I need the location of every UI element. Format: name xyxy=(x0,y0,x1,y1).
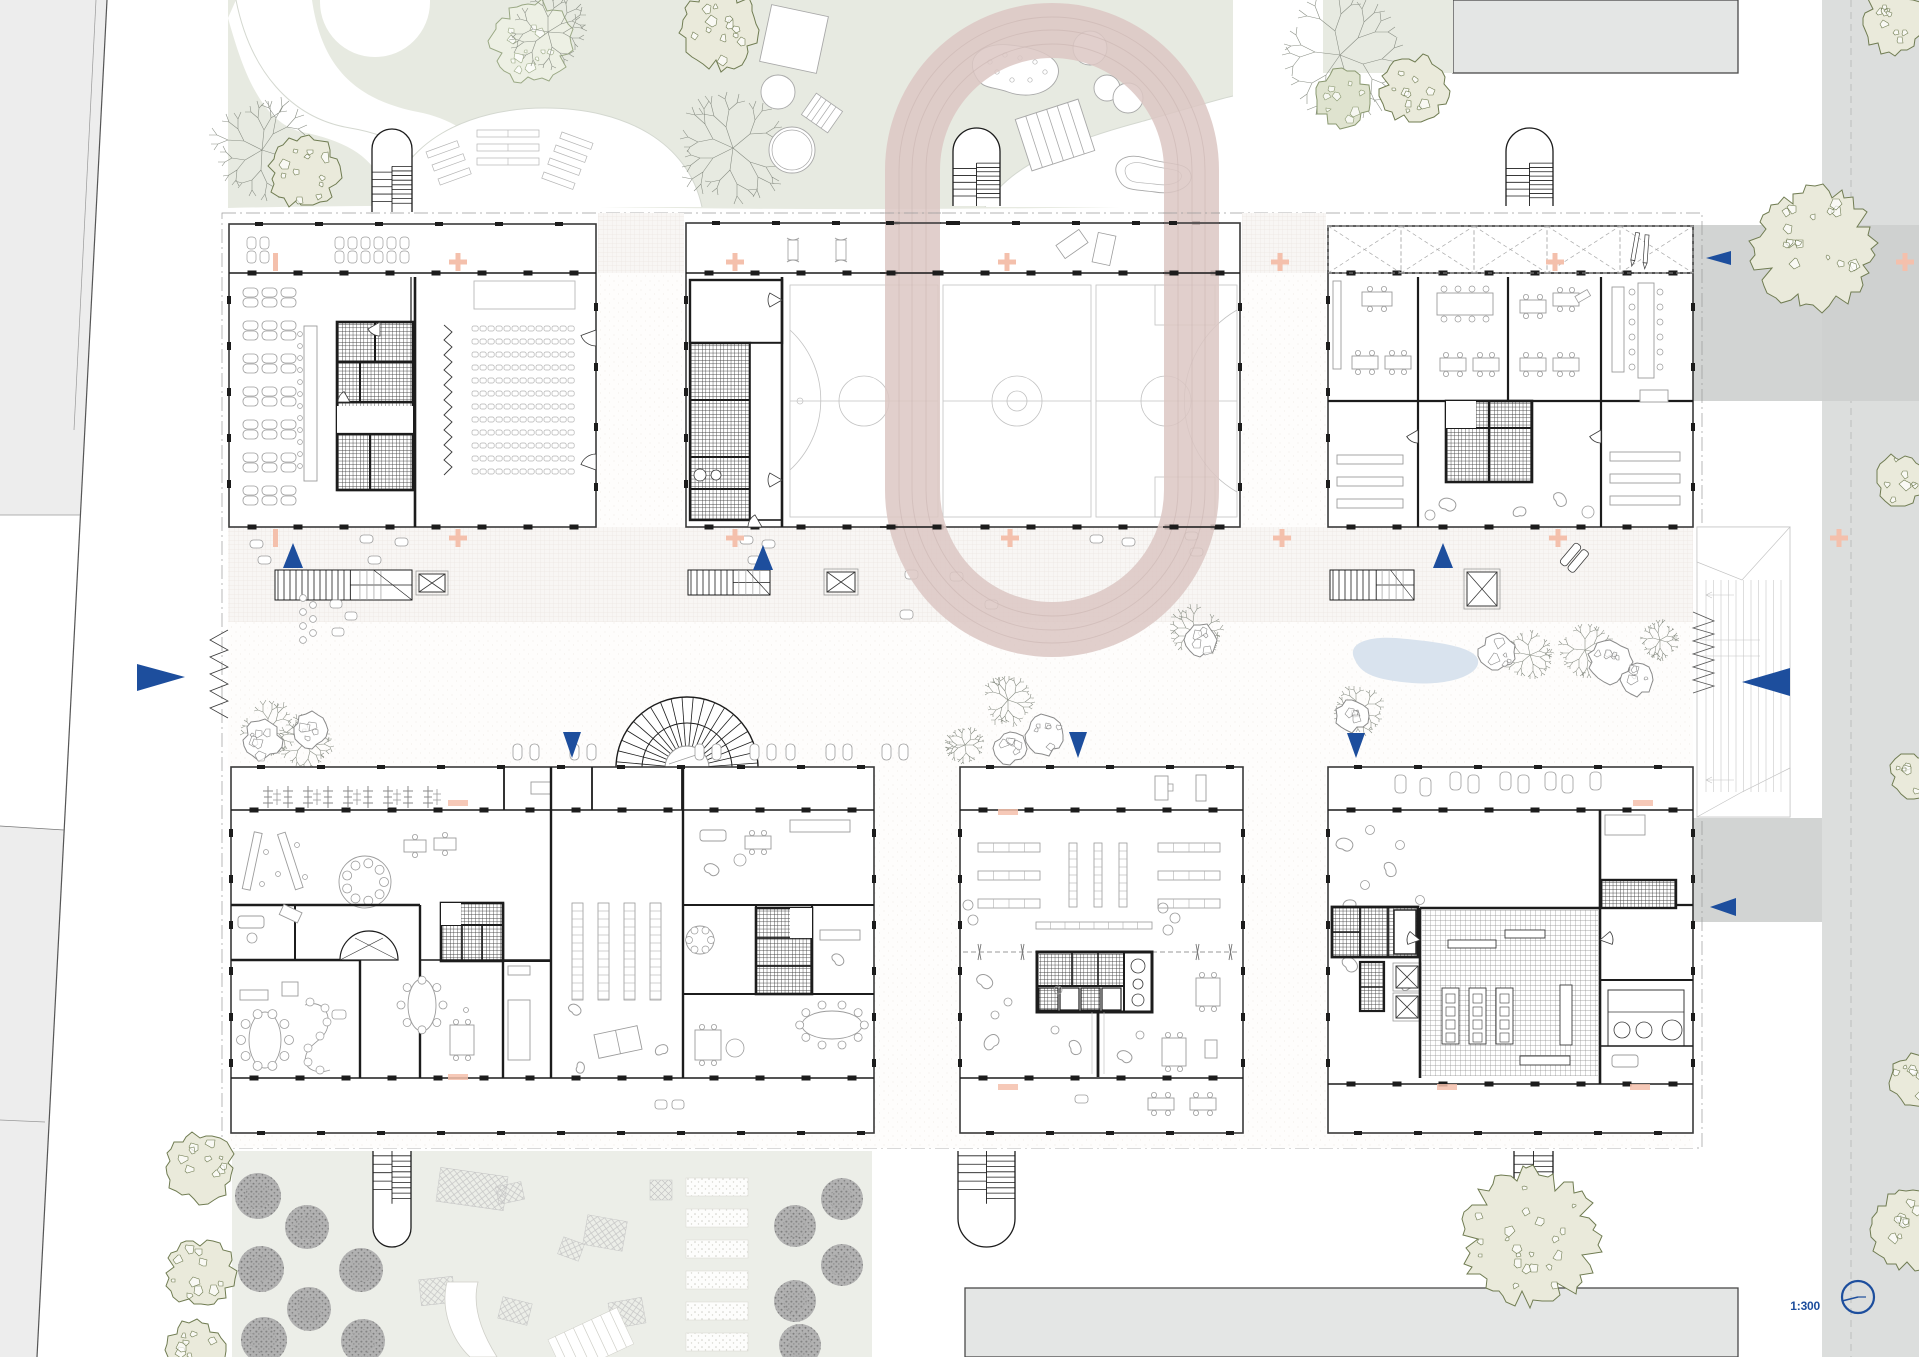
svg-text:1:300: 1:300 xyxy=(1790,1299,1820,1313)
